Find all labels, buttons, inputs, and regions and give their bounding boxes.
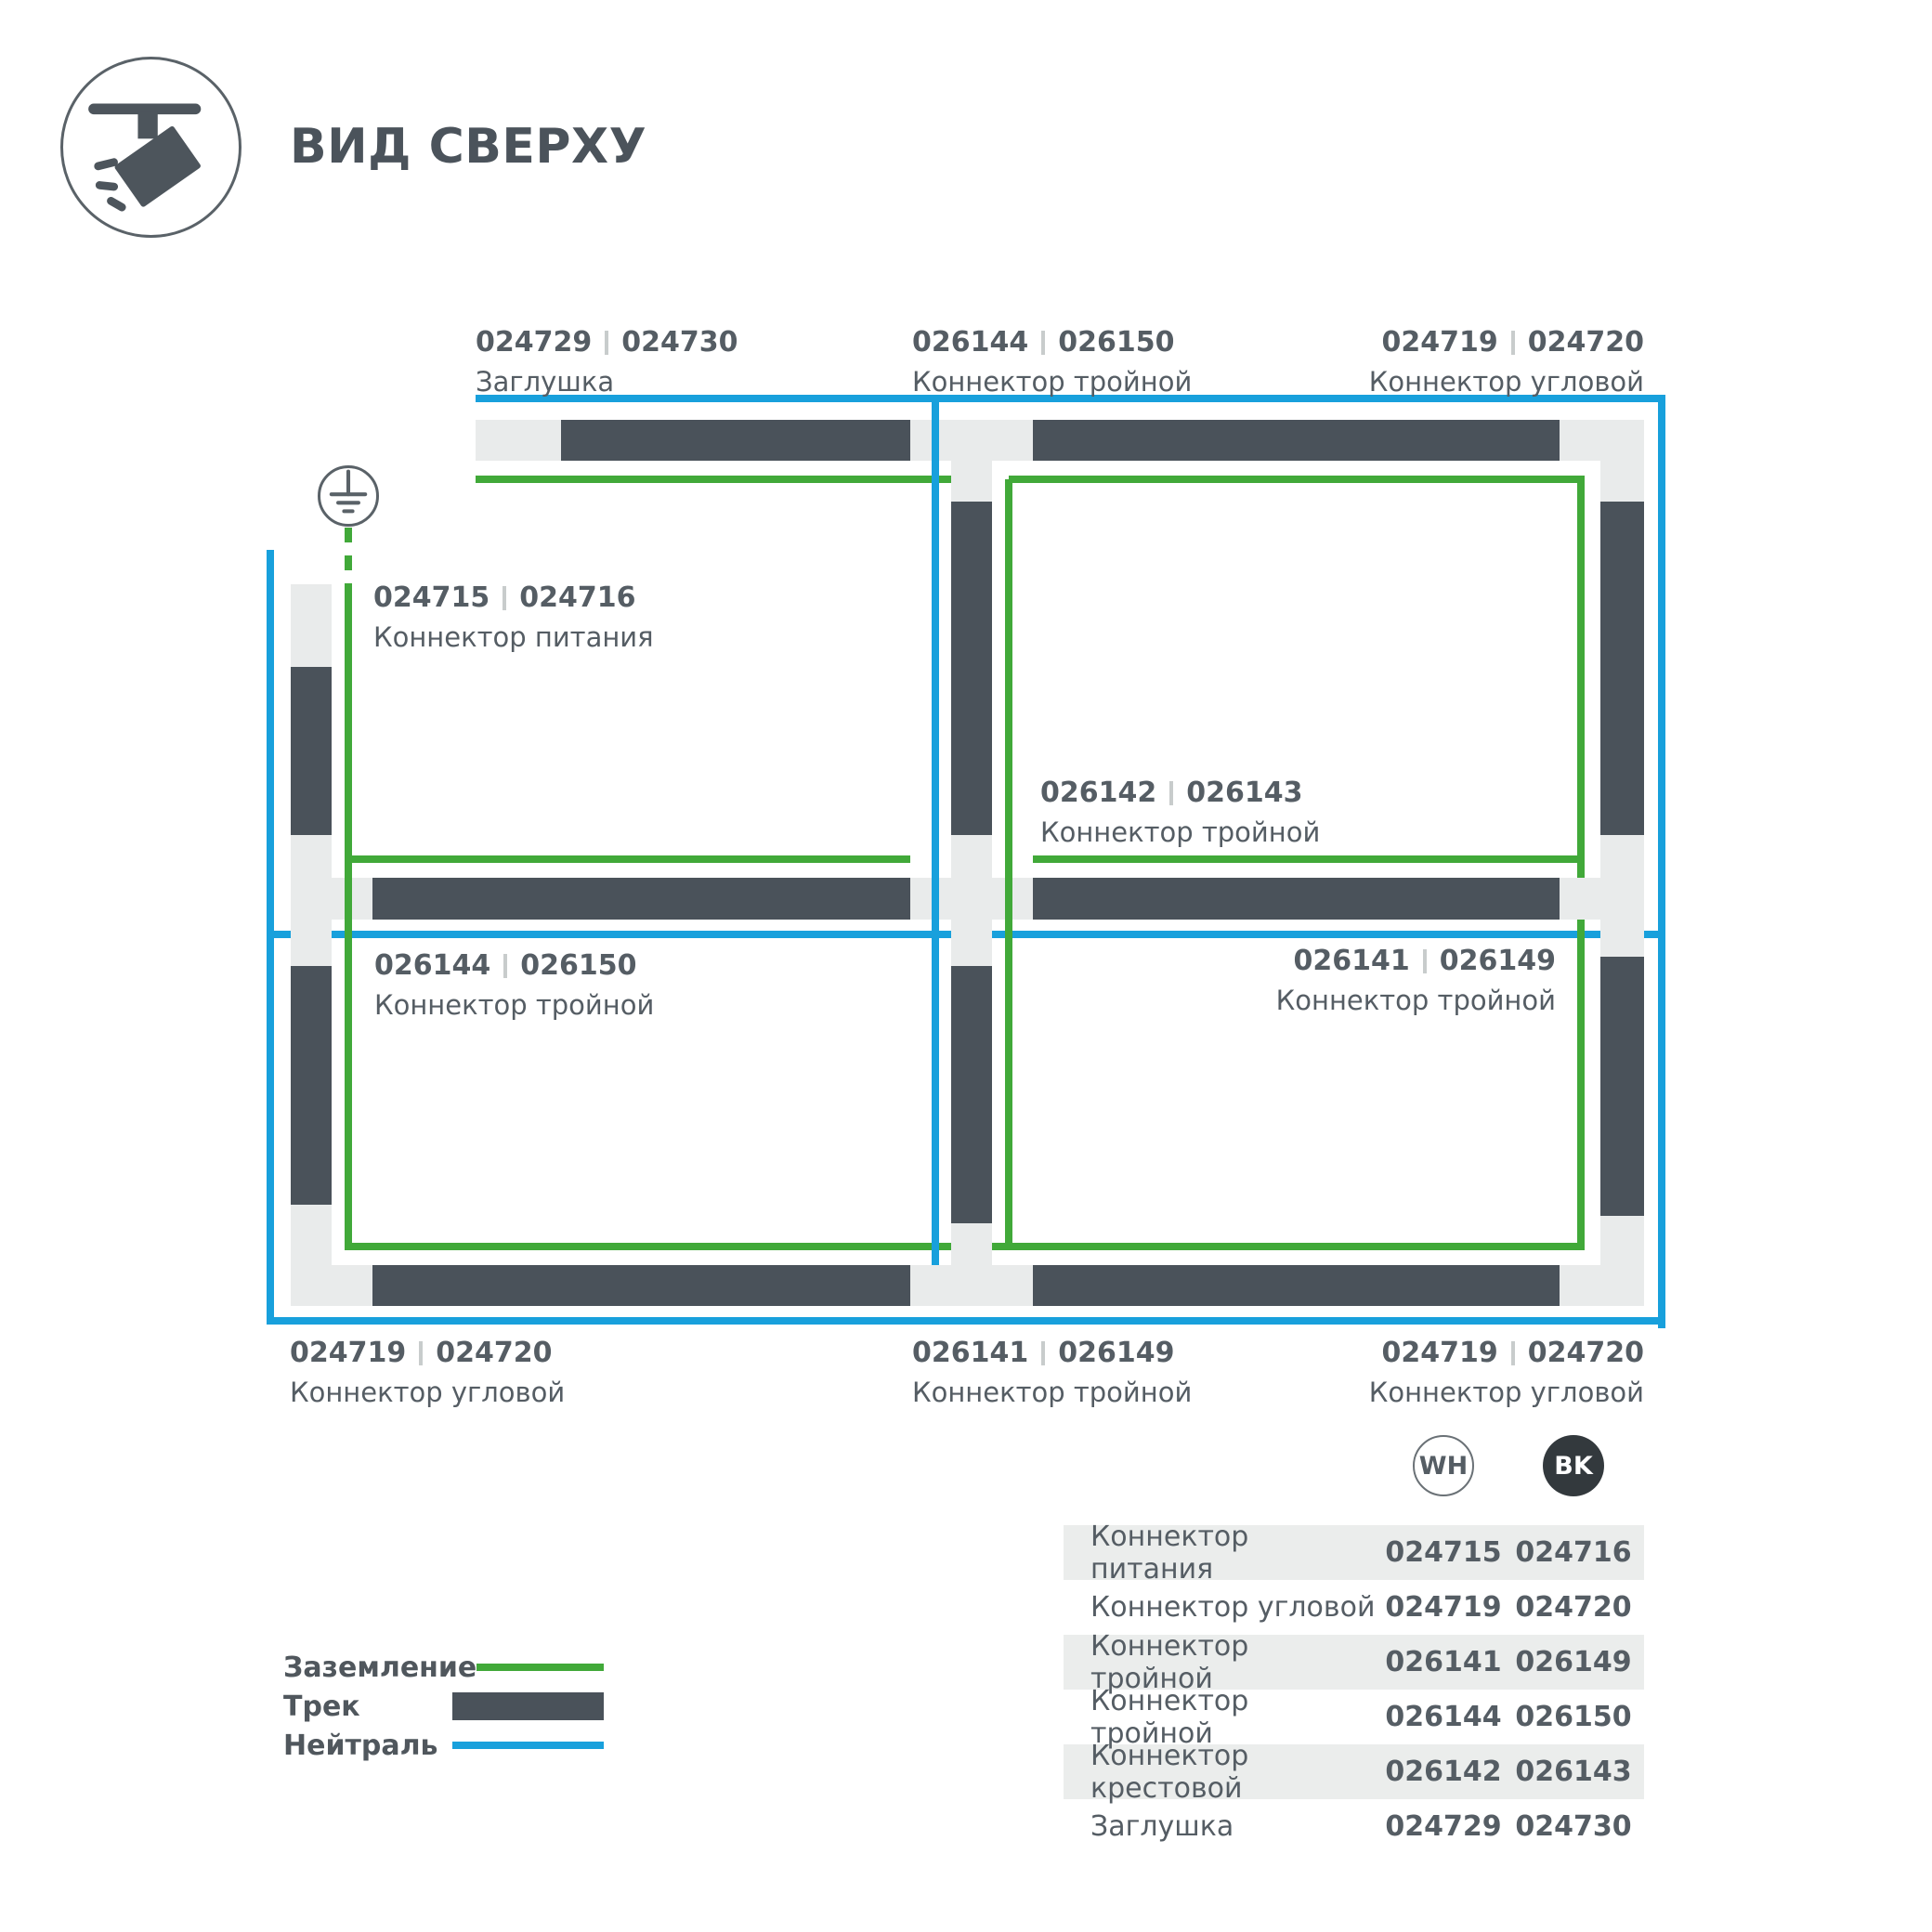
parts-table: Коннектор питания024715024716 Коннектор … [1064,1525,1644,1854]
ground-line-top-b [1009,476,1585,483]
neutral-line-mid-vertical [932,395,939,1265]
label-separator [1041,1341,1045,1365]
track-segment [372,1265,910,1306]
label-separator [419,1341,423,1365]
label-separator [605,331,608,355]
diagram-label-cross: 026142026143 Коннектор тройной [1040,777,1320,848]
track-segment [1600,957,1644,1216]
table-row: Коннектор тройной026141026149 [1064,1635,1644,1690]
ground-line-mid-b [1033,855,1581,863]
legend-item-track: Трек [283,1687,604,1726]
track-segment [951,966,992,1223]
table-row: Коннектор угловой024719024720 [1064,1580,1644,1635]
label-separator [1511,1341,1515,1365]
label-separator [503,586,506,610]
neutral-line-mid-left [270,931,951,938]
diagram-label-t-connector: 026141026149 Коннектор тройной [1276,946,1556,1016]
earth-ground-icon [318,465,379,527]
diagram-label-corner: 024719024720 Коннектор угловой [1369,1338,1644,1408]
neutral-line-mid-right [992,931,1665,938]
track-segment [1033,1265,1560,1306]
cross-connector-piece [951,835,992,878]
power-connector-piece [291,835,332,966]
track-swatch [452,1692,604,1720]
ground-line-right-upper [1577,476,1585,878]
diagram-label-t-connector: 026144026150 Коннектор тройной [374,950,654,1021]
table-row: Коннектор крестовой026142026143 [1064,1744,1644,1799]
end-cap-piece [291,584,332,667]
track-segment [1033,878,1560,920]
corner-connector-piece [1600,1216,1644,1265]
legend-item-ground: Заземление [283,1648,604,1687]
wh-color-badge: WH [1413,1435,1474,1496]
t-connector-piece [910,1265,1033,1306]
cross-connector-piece [951,920,992,966]
table-row: Заглушка024729024730 [1064,1799,1644,1854]
page-title: ВИД СВЕРХУ [290,119,646,175]
table-row: Коннектор питания024715024716 [1064,1525,1644,1580]
end-cap-piece [476,420,561,461]
track-segment [291,667,332,835]
track-segment [372,878,910,920]
page: ВИД СВЕРХУ [0,0,1932,1932]
corner-connector-piece [1560,420,1644,461]
power-connector-piece [332,878,372,920]
bk-color-badge: BK [1543,1435,1604,1496]
t-connector-piece [951,461,992,502]
ground-line-top-a [476,476,951,483]
diagram-label-t-connector: 026144026150 Коннектор тройной [912,327,1192,398]
diagram-label-power: 024715024716 Коннектор питания [373,582,654,653]
ground-line-mid-vertical [1005,479,1012,1250]
corner-connector-piece [291,1205,332,1265]
diagram-label-t-connector: 026141026149 Коннектор тройной [912,1338,1192,1408]
t-connector-piece [951,1223,992,1265]
ground-line-swatch [476,1664,604,1671]
ground-line-bottom-b [992,1243,1585,1250]
ground-line-left-over [345,835,352,966]
ground-line-bottom-a [345,1243,951,1250]
legend-item-neutral: Нейтраль [283,1726,604,1765]
track-segment [561,420,910,461]
label-separator [1423,949,1427,973]
neutral-line-swatch [452,1742,604,1749]
ground-line-right-lower [1577,920,1585,1250]
corner-connector-piece [291,1265,372,1306]
ground-line-mid-a [348,855,910,863]
label-separator [1169,781,1173,805]
t-connector-piece [910,420,1033,461]
corner-connector-piece [1560,1265,1644,1306]
cross-connector-piece [910,878,1033,920]
track-spotlight-icon [60,57,241,238]
track-segment [951,502,992,835]
neutral-line-bottom [267,1317,1665,1325]
diagram-label-end-cap: 024729024730 Заглушка [476,327,738,398]
track-segment [1600,502,1644,835]
track-segment [1033,420,1560,461]
label-separator [1041,331,1045,355]
diagram-label-corner: 024719024720 Коннектор угловой [1369,327,1644,398]
label-separator [503,954,507,978]
neutral-line-right [1658,395,1665,1328]
track-segment [291,966,332,1205]
diagram-label-corner: 024719024720 Коннектор угловой [290,1338,565,1408]
ground-line-dashed [345,528,352,585]
label-separator [1511,331,1515,355]
t-connector-piece [1600,835,1644,957]
corner-connector-piece [1600,461,1644,502]
table-row: Коннектор тройной026144026150 [1064,1690,1644,1744]
